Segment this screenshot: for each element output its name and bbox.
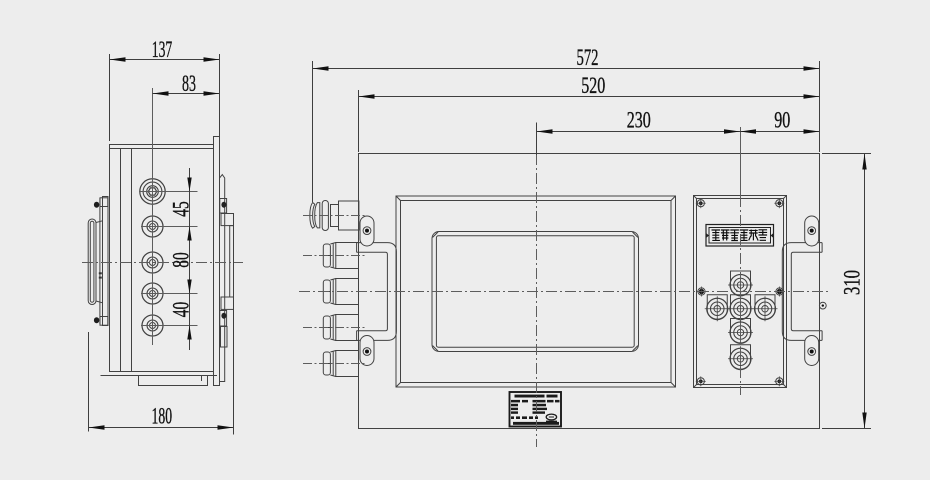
- svg-text:90: 90: [774, 107, 790, 132]
- svg-text:180: 180: [152, 404, 173, 429]
- svg-text:520: 520: [581, 73, 605, 98]
- svg-text:137: 137: [152, 37, 173, 62]
- svg-text:80: 80: [169, 252, 194, 268]
- svg-text:83: 83: [182, 71, 196, 96]
- svg-text:230: 230: [627, 107, 651, 132]
- svg-text:40: 40: [169, 302, 194, 318]
- svg-text:572: 572: [577, 45, 599, 70]
- svg-text:310: 310: [840, 270, 865, 295]
- svg-text:45: 45: [169, 201, 194, 217]
